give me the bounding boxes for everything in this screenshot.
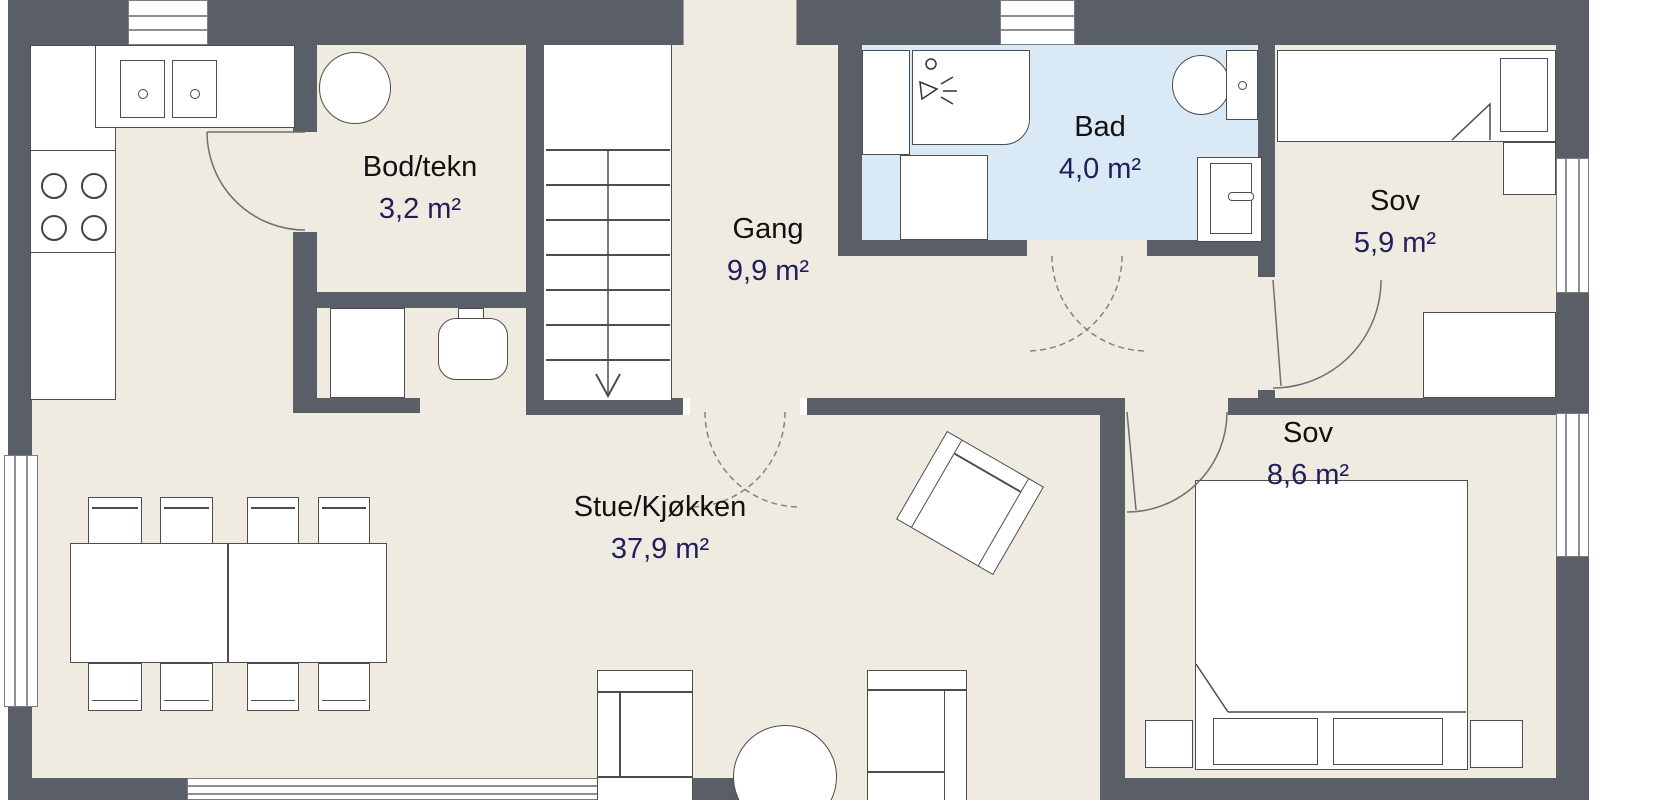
wall-stairs-left <box>526 45 544 415</box>
niche-cabinet <box>330 308 405 398</box>
burner-icon <box>81 173 107 199</box>
burner-icon <box>81 215 107 241</box>
room-area: 37,9 m² <box>510 528 810 570</box>
wall-stue-gang <box>800 398 1125 415</box>
wall-niche-stub <box>293 398 420 413</box>
pillow <box>1333 718 1443 765</box>
dining-chair <box>160 663 213 711</box>
door-jamb <box>683 398 690 415</box>
room-label-bad: Bad 4,0 m² <box>990 106 1210 190</box>
toilet-tank <box>1226 50 1258 120</box>
dining-chair <box>88 663 142 711</box>
dining-chair <box>88 497 142 545</box>
pillow <box>1213 718 1318 765</box>
bathroom-wardrobe <box>862 50 910 155</box>
window-left-living <box>4 455 38 707</box>
window-right-sov-small <box>1556 158 1589 293</box>
room-name: Bod/tekn <box>310 146 530 188</box>
wall-sov-large-left <box>1100 413 1125 800</box>
drain-icon <box>190 89 200 99</box>
window-top-kitchen <box>128 0 208 45</box>
armchair <box>597 670 693 800</box>
stove <box>30 150 116 253</box>
window-right-sov-large <box>1556 413 1589 557</box>
kitchen-sink <box>120 60 165 118</box>
burner-icon <box>41 173 67 199</box>
room-label-sov-small: Sov 5,9 m² <box>1285 180 1505 264</box>
dining-chair <box>247 663 299 711</box>
wall-bath-bottom-left <box>862 240 1027 256</box>
water-heater <box>319 52 391 124</box>
burner-icon <box>41 215 67 241</box>
wall-top <box>8 0 1589 45</box>
dining-chair <box>318 497 370 545</box>
dining-chair <box>160 497 213 545</box>
washing-machine <box>900 155 988 240</box>
kitchen-sink <box>172 60 217 118</box>
room-area: 9,9 m² <box>658 250 878 292</box>
drain-icon <box>138 89 148 99</box>
room-name: Sov <box>1285 180 1505 222</box>
room-area: 8,6 m² <box>1198 454 1418 496</box>
dining-chair <box>318 663 370 711</box>
wall-sov-small-left-stub <box>1258 390 1275 413</box>
wall-bod-bottom <box>293 292 546 308</box>
pump-unit <box>438 318 508 380</box>
floor-plan: Bod/tekn 3,2 m² Gang 9,9 m² Bad 4,0 m² S… <box>0 0 1670 800</box>
window-bottom-living <box>187 778 617 800</box>
room-area: 5,9 m² <box>1285 222 1505 264</box>
nightstand <box>1145 720 1193 768</box>
dining-chair <box>247 497 299 545</box>
flush-button-icon <box>1238 81 1247 90</box>
door-jamb <box>800 398 807 415</box>
room-label-stue: Stue/Kjøkken 37,9 m² <box>510 486 810 570</box>
room-area: 4,0 m² <box>990 148 1210 190</box>
room-label-gang: Gang 9,9 m² <box>658 208 878 292</box>
wall-bod-left-upper <box>293 45 317 132</box>
room-name: Stue/Kjøkken <box>510 486 810 528</box>
entry-opening <box>683 0 797 45</box>
sofa <box>867 670 967 800</box>
room-label-bod: Bod/tekn 3,2 m² <box>310 146 530 230</box>
desk <box>1423 312 1556 398</box>
room-name: Sov <box>1198 412 1418 454</box>
staircase <box>544 45 672 400</box>
wall-bath-bottom-right <box>1147 240 1275 256</box>
room-name: Gang <box>658 208 878 250</box>
room-label-sov-large: Sov 8,6 m² <box>1198 412 1418 496</box>
wall-bod-left-lower <box>293 232 317 413</box>
room-name: Bad <box>990 106 1210 148</box>
pillow <box>1500 58 1548 132</box>
wall-bottom-right <box>1100 778 1589 800</box>
wall-stairs-bottom <box>526 398 690 415</box>
nightstand <box>1503 142 1556 195</box>
dining-table <box>70 543 387 663</box>
room-area: 3,2 m² <box>310 188 530 230</box>
window-top-bath <box>1000 0 1075 45</box>
nightstand <box>1470 720 1523 768</box>
